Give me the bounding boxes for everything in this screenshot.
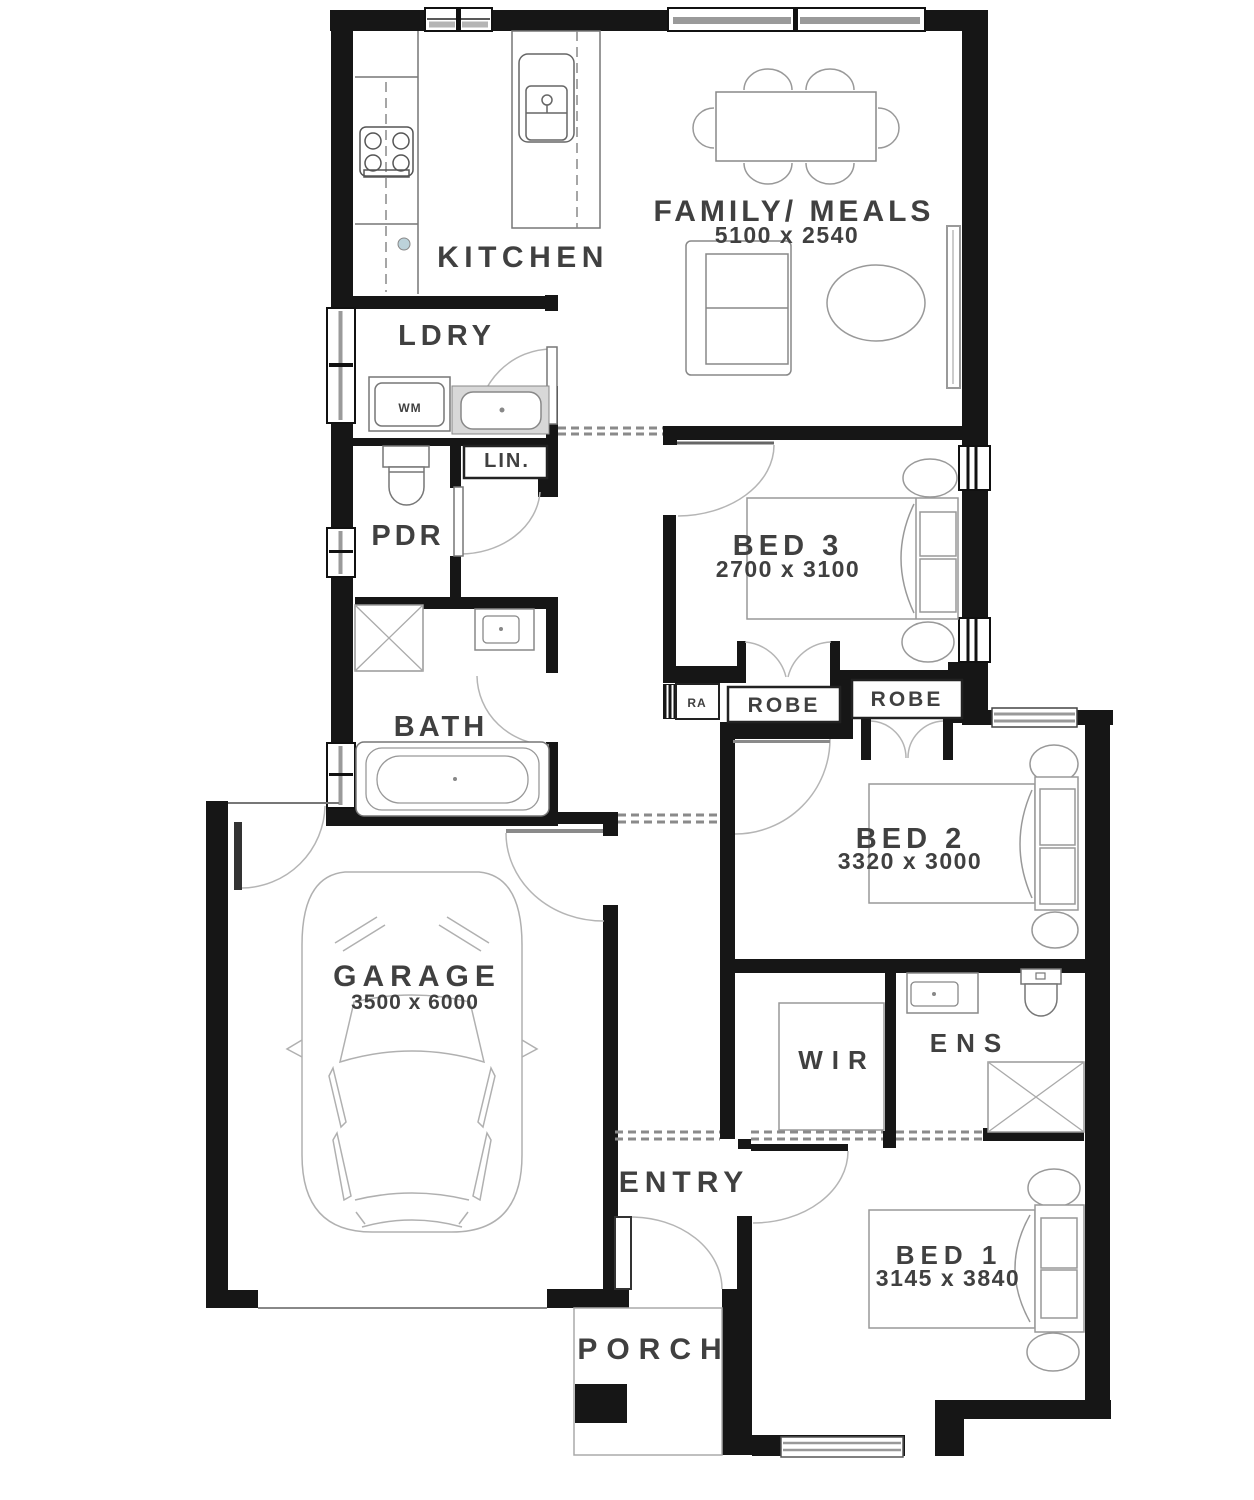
svg-text:ROBE: ROBE <box>748 694 821 717</box>
svg-text:WIR: WIR <box>798 1045 876 1075</box>
svg-text:3320 x 3000: 3320 x 3000 <box>838 848 982 874</box>
svg-text:LIN.: LIN. <box>484 450 530 472</box>
svg-text:KITCHEN: KITCHEN <box>437 241 609 274</box>
svg-text:ENS: ENS <box>930 1028 1010 1058</box>
svg-text:ROBE: ROBE <box>871 688 944 711</box>
svg-text:WM: WM <box>398 401 421 415</box>
svg-text:LDRY: LDRY <box>398 320 496 352</box>
svg-text:BATH: BATH <box>394 711 488 743</box>
svg-text:PDR: PDR <box>371 520 444 552</box>
svg-text:RA: RA <box>687 696 706 710</box>
svg-text:5100 x 2540: 5100 x 2540 <box>715 222 859 248</box>
svg-text:PORCH: PORCH <box>577 1333 730 1366</box>
svg-text:2700 x 3100: 2700 x 3100 <box>716 556 860 582</box>
svg-text:3500 x 6000: 3500 x 6000 <box>351 991 479 1014</box>
svg-text:GARAGE: GARAGE <box>333 960 501 993</box>
svg-text:3145 x 3840: 3145 x 3840 <box>876 1265 1020 1291</box>
svg-text:ENTRY: ENTRY <box>619 1166 750 1199</box>
